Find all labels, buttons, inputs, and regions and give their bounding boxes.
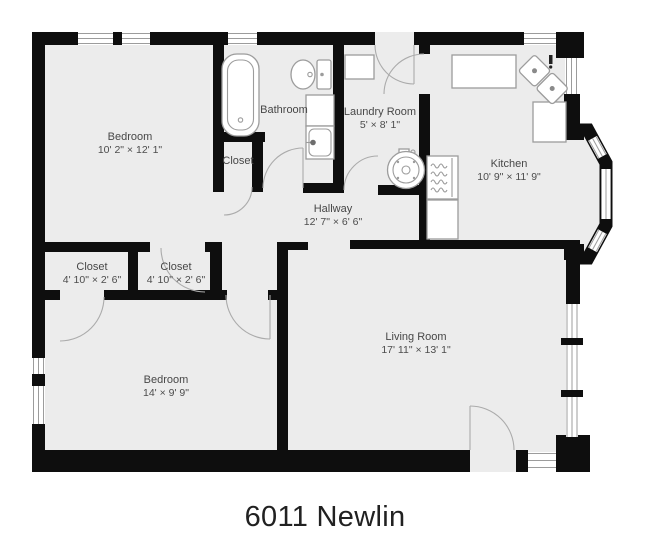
room-dims: 14' × 9' 9" bbox=[143, 387, 189, 400]
room-name: Hallway bbox=[304, 203, 362, 216]
room-label-bedroom2: Bedroom 14' × 9' 9" bbox=[143, 374, 189, 399]
floor-plan: Bedroom 10' 2" × 12' 1" Bathroom Closet … bbox=[0, 0, 650, 552]
room-name: Closet bbox=[222, 155, 253, 168]
room-label-kitchen: Kitchen 10' 9" × 11' 9" bbox=[477, 158, 541, 183]
plan-title: 6011 Newlin bbox=[0, 501, 650, 534]
toilet-icon bbox=[291, 60, 331, 89]
window bbox=[566, 345, 578, 390]
window bbox=[78, 32, 113, 45]
window bbox=[528, 452, 556, 469]
room-label-hallway: Hallway 12' 7" × 6' 6" bbox=[304, 203, 362, 228]
room-dims: 4' 10" × 2' 6" bbox=[147, 274, 205, 287]
window bbox=[566, 397, 578, 437]
window bbox=[524, 32, 556, 45]
room-label-closet-top: Closet bbox=[222, 155, 253, 168]
room-label-closet-mid: Closet 4' 10" × 2' 6" bbox=[147, 261, 205, 286]
room-name: Closet bbox=[147, 261, 205, 274]
stove-icon bbox=[427, 156, 458, 199]
laundry-counter bbox=[345, 55, 374, 79]
room-label-laundry: Laundry Room 5' × 8' 1" bbox=[344, 106, 416, 131]
room-dims: 4' 10" × 2' 6" bbox=[63, 274, 121, 287]
room-label-living: Living Room 17' 11" × 13' 1" bbox=[381, 331, 450, 356]
window bbox=[566, 304, 578, 338]
room-name: Laundry Room bbox=[344, 106, 416, 119]
room-dims: 10' 9" × 11' 9" bbox=[477, 171, 541, 184]
window bbox=[32, 386, 45, 424]
room-label-closet-left: Closet 4' 10" × 2' 6" bbox=[63, 261, 121, 286]
bathtub-icon bbox=[222, 54, 259, 136]
room-dims: 17' 11" × 13' 1" bbox=[381, 344, 450, 357]
room-label-bathroom: Bathroom bbox=[260, 104, 308, 117]
room-dims: 10' 2" × 12' 1" bbox=[98, 144, 162, 157]
room-name: Living Room bbox=[381, 331, 450, 344]
vanity-sink-icon bbox=[306, 95, 334, 159]
room-name: Closet bbox=[63, 261, 121, 274]
window bbox=[122, 32, 150, 45]
room-name: Bathroom bbox=[260, 104, 308, 117]
window bbox=[32, 358, 45, 374]
window bbox=[228, 32, 257, 45]
room-label-bedroom1: Bedroom 10' 2" × 12' 1" bbox=[98, 131, 162, 156]
room-name: Bedroom bbox=[98, 131, 162, 144]
room-name: Kitchen bbox=[477, 158, 541, 171]
room-dims: 5' × 8' 1" bbox=[344, 119, 416, 132]
room-dims: 12' 7" × 6' 6" bbox=[304, 216, 362, 229]
room-name: Bedroom bbox=[143, 374, 189, 387]
